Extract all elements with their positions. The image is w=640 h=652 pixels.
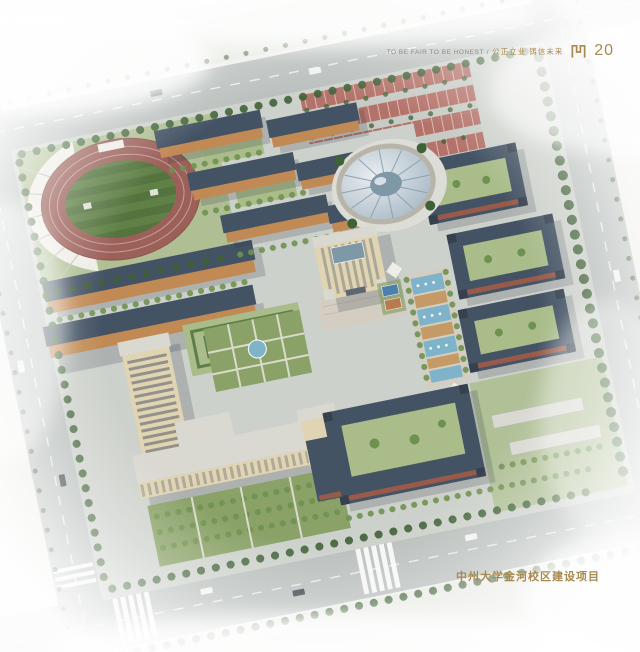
haze-overlay xyxy=(0,0,640,652)
logo-number: 20 xyxy=(594,42,614,60)
slogan-english: TO BE FAIR TO BE HONEST xyxy=(387,49,484,56)
seal-logo-icon xyxy=(570,43,587,60)
project-title: 中州大学金河校区建设项目 xyxy=(456,568,600,584)
slogan-chinese: 公正立业 铸信未来 xyxy=(492,47,563,56)
slogan-text: TO BE FAIR TO BE HONEST/公正立业 铸信未来 xyxy=(387,46,564,57)
header-slogan-bar: TO BE FAIR TO BE HONEST/公正立业 铸信未来 20 xyxy=(387,42,614,60)
slogan-separator: / xyxy=(487,49,489,56)
rendering-stage: TO BE FAIR TO BE HONEST/公正立业 铸信未来 20 中州大… xyxy=(0,0,640,652)
campus-rendering xyxy=(0,0,640,652)
